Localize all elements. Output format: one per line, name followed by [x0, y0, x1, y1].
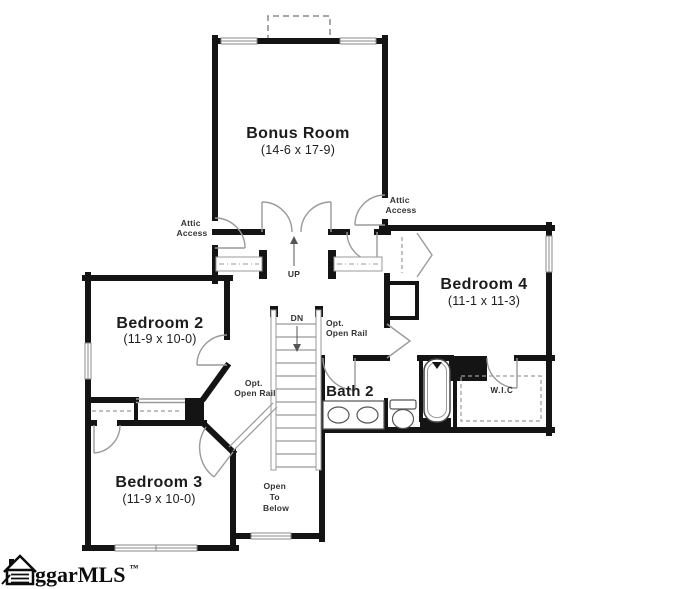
- opt-open-rail-right-line2: Open Rail: [326, 328, 367, 338]
- window: [115, 545, 197, 551]
- attic-access-left-line2: Access: [177, 228, 208, 238]
- attic-access-left-line1: Attic: [181, 218, 201, 228]
- mls-logo-trademark: ™: [129, 563, 138, 573]
- vanity: [323, 401, 384, 429]
- bedroom2-label: Bedroom 2: [116, 315, 203, 332]
- bedroom4-label: Bedroom 4: [440, 276, 527, 293]
- open-to-below-line3: Below: [263, 503, 289, 513]
- bath2-label: Bath 2: [326, 383, 374, 400]
- wall-chunk: [185, 398, 204, 425]
- opt-open-rail-right-line1: Opt.: [326, 318, 344, 328]
- window: [546, 236, 552, 272]
- opt-open-rail-left-line2: Open Rail: [234, 388, 275, 398]
- floor-plan-svg: Bonus Room (14-6 x 17-9) Bedroom 2 (11-9…: [0, 0, 698, 589]
- window: [85, 343, 91, 379]
- mls-logo-name: ggarMLS: [35, 562, 125, 587]
- dn-label: DN: [291, 313, 304, 323]
- attic-access-right-label: Attic Access: [386, 195, 417, 215]
- floor-plan-image: Bonus Room (14-6 x 17-9) Bedroom 2 (11-9…: [0, 0, 698, 589]
- window: [221, 38, 257, 44]
- open-to-below-line2: To: [270, 492, 280, 502]
- up-label: UP: [288, 269, 300, 279]
- plan-background: [0, 0, 698, 589]
- bedroom3-dims: (11-9 x 10-0): [122, 492, 195, 506]
- bonus-room-dims: (14-6 x 17-9): [261, 143, 335, 157]
- attic-access-right-line1: Attic: [390, 195, 410, 205]
- toilet: [390, 400, 416, 429]
- bedroom2-dims: (11-9 x 10-0): [123, 332, 196, 346]
- bathtub: [424, 359, 450, 422]
- opt-open-rail-left-line1: Opt.: [245, 378, 263, 388]
- bonus-room-label: Bonus Room: [246, 125, 350, 142]
- sink: [328, 407, 349, 423]
- attic-access-left-label: Attic Access: [177, 218, 208, 238]
- window: [340, 38, 376, 44]
- bedroom3-label: Bedroom 3: [115, 474, 202, 491]
- mls-logo-text: ggarMLS ™: [35, 562, 138, 587]
- wic-label: W.I.C: [490, 386, 513, 395]
- stair-rail-right: [316, 310, 321, 470]
- sink: [357, 407, 378, 423]
- window: [251, 533, 291, 539]
- attic-access-right-line2: Access: [386, 205, 417, 215]
- open-to-below-line1: Open: [263, 481, 286, 491]
- bedroom4-dims: (11-1 x 11-3): [448, 294, 520, 308]
- wall-chunk: [449, 356, 487, 381]
